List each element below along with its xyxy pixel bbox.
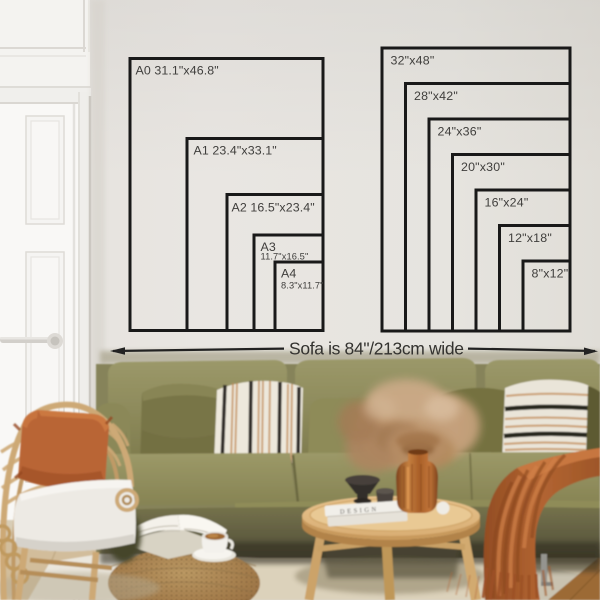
svg-text:A1 23.4"x33.1": A1 23.4"x33.1" — [194, 144, 277, 158]
svg-text:32"x48": 32"x48" — [391, 54, 435, 68]
svg-text:20"x30": 20"x30" — [461, 160, 505, 174]
svg-text:Sofa is 84"/213cm wide: Sofa is 84"/213cm wide — [289, 338, 464, 358]
svg-text:28"x42": 28"x42" — [414, 89, 458, 103]
svg-text:A4: A4 — [281, 267, 296, 281]
svg-text:16"x24": 16"x24" — [485, 196, 529, 210]
svg-text:12"x18": 12"x18" — [508, 231, 552, 245]
svg-text:11.7"x16.5": 11.7"x16.5" — [261, 252, 309, 262]
svg-text:A2 16.5"x23.4": A2 16.5"x23.4" — [232, 200, 315, 214]
svg-text:8.3"x11.7": 8.3"x11.7" — [281, 281, 324, 291]
svg-text:24"x36": 24"x36" — [438, 125, 482, 139]
svg-text:A0 31.1"x46.8": A0 31.1"x46.8" — [136, 64, 219, 78]
svg-text:8"x12": 8"x12" — [532, 267, 569, 281]
